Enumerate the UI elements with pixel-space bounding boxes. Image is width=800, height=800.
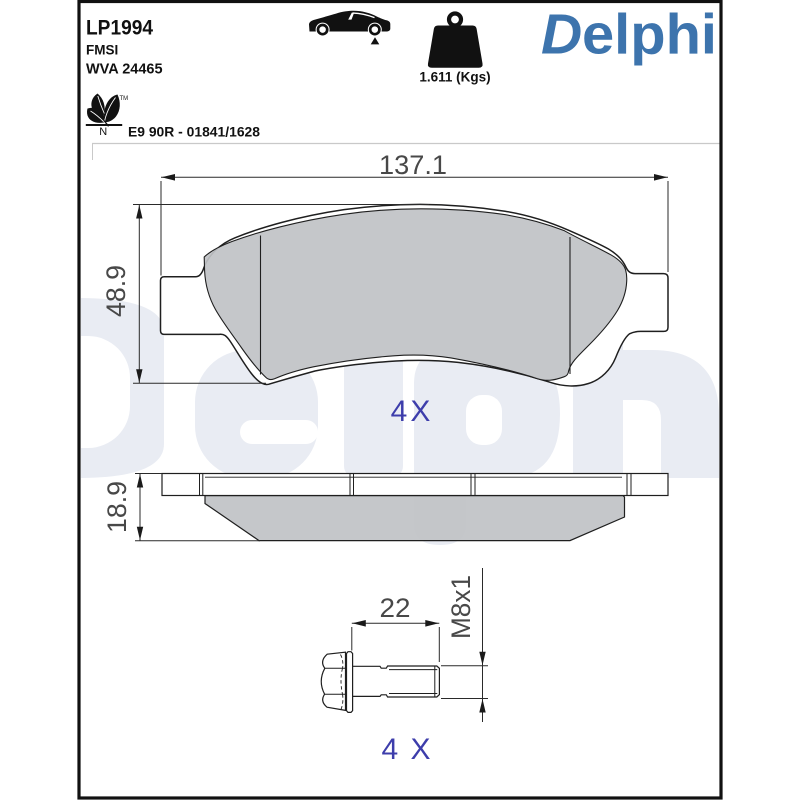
svg-text:137.1: 137.1 [379, 150, 447, 180]
svg-text:WVA 24465: WVA 24465 [86, 62, 163, 78]
svg-text:M8x1: M8x1 [446, 575, 476, 639]
svg-text:elphi: elphi [582, 3, 717, 67]
svg-text:48.9: 48.9 [101, 265, 131, 317]
svg-text:N: N [99, 126, 107, 138]
svg-text:LP1994: LP1994 [86, 17, 153, 40]
svg-text:TM: TM [120, 96, 129, 102]
svg-text:1.611 (Kgs): 1.611 (Kgs) [419, 70, 490, 85]
svg-text:4 X: 4 X [381, 733, 432, 766]
svg-text:18.9: 18.9 [102, 481, 132, 533]
svg-text:22: 22 [380, 593, 411, 623]
svg-text:4X: 4X [391, 395, 434, 428]
svg-text:D: D [541, 3, 582, 67]
svg-text:FMSI: FMSI [86, 43, 118, 58]
svg-text:E9 90R - 01841/1628: E9 90R - 01841/1628 [128, 124, 260, 140]
